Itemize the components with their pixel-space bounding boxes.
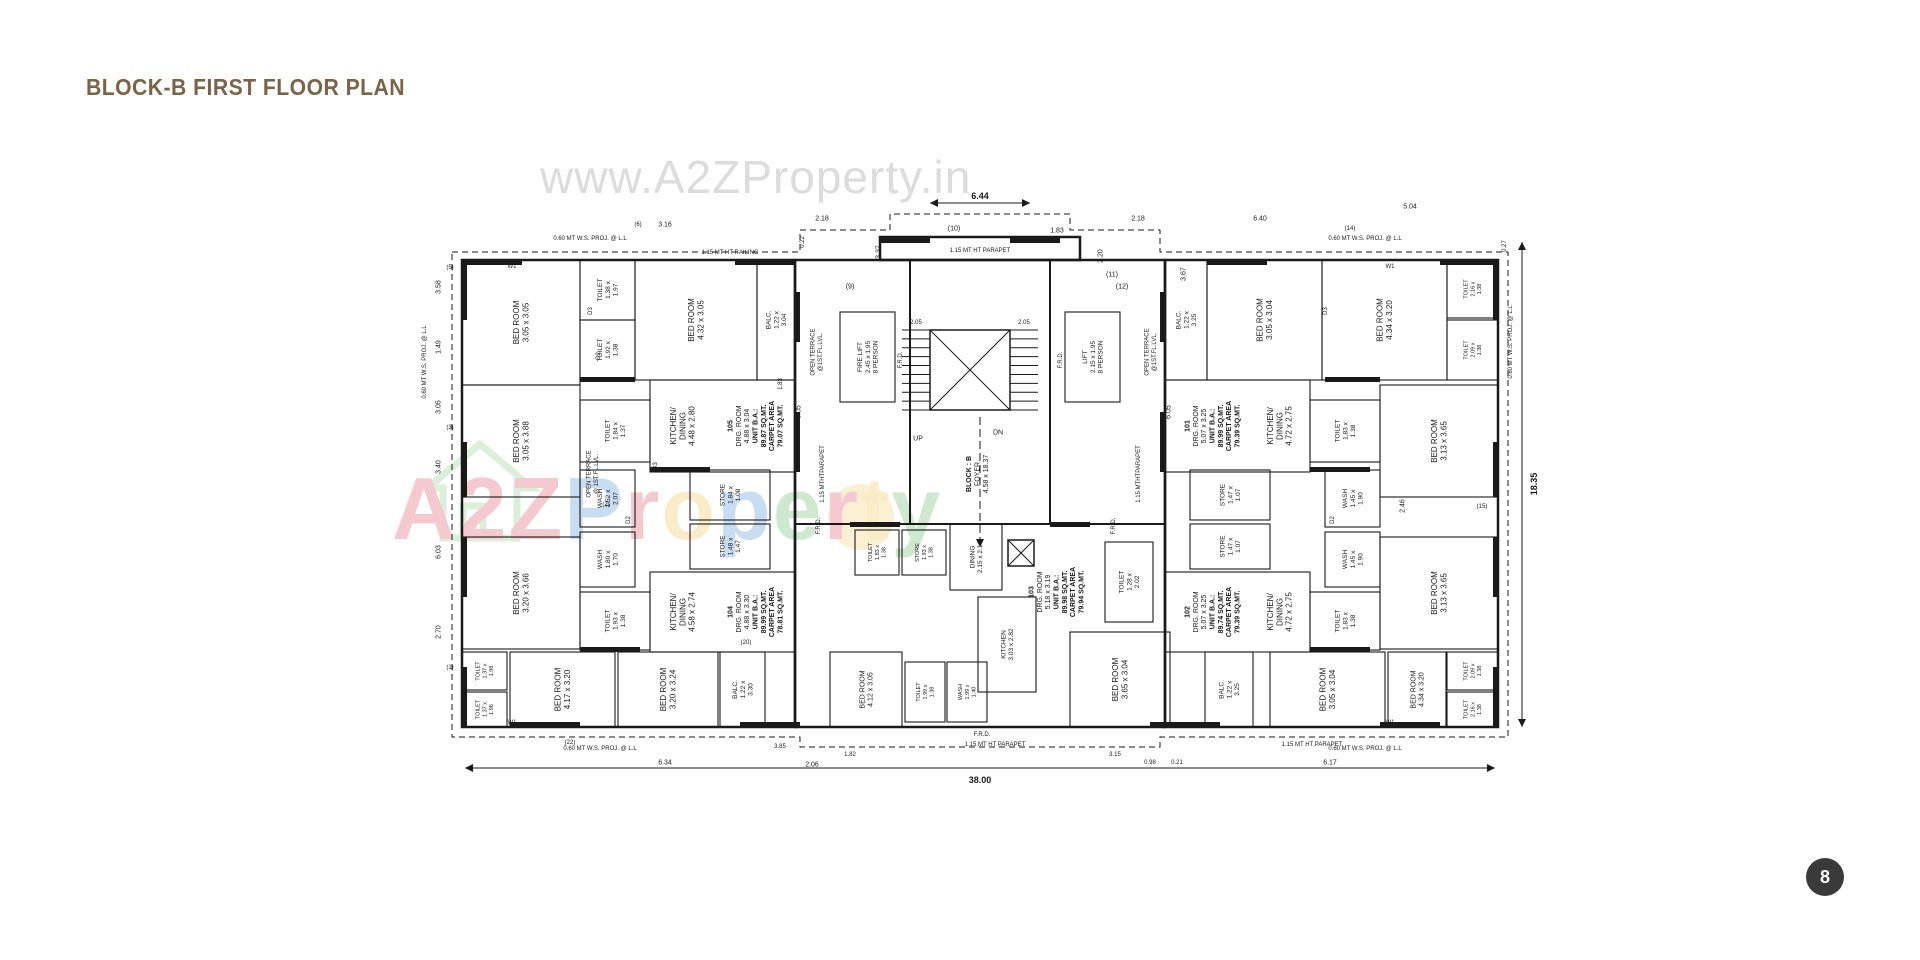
wall-segment <box>795 292 800 342</box>
annotation-label: OPEN TERRACE@ 1ST.FL.LVL. <box>586 450 599 497</box>
annotation-label: 1.15 MT HT PARAPET <box>965 742 1026 748</box>
annotation-label: (14) <box>1345 226 1356 232</box>
dim-arrow <box>1518 242 1526 250</box>
annotation-label: 1.15 MTHTPARAPET <box>820 445 826 503</box>
annotation-label: D2 <box>1330 516 1336 524</box>
annotation-label: 1.83 <box>778 378 784 390</box>
room-label: TOILET1.38 x1.97 <box>597 279 620 302</box>
annotation-label: 2.46 <box>1399 499 1406 513</box>
room-label: LIFT2.15 x 1.958 PERSON <box>1082 340 1105 373</box>
room-label: KITCHEN/DINING4.58 x 2.74 <box>669 592 697 632</box>
annotation-label: 0.27 <box>1502 240 1508 252</box>
unit-info-105: 105DRG. ROOM4.88 x 3.04UNIT B.A.:89.87 S… <box>728 401 785 451</box>
annotation-label: 2.20 <box>1097 249 1104 263</box>
room-label: BED ROOM3.13 x 3.65 <box>1430 419 1448 463</box>
room-label: TOILET1.84 x1.37 <box>604 420 627 443</box>
annotation-label: 0.60 MT W.S. PROJ. @ L.L <box>1508 305 1514 379</box>
room-label: WASH1.45 x1.90 <box>1342 550 1365 570</box>
room-label: BALC.1.22 x3.25 <box>1218 680 1241 699</box>
room-label: TOILET1.28 x2.02 <box>1118 571 1141 594</box>
page-title: BLOCK-B FIRST FLOOR PLAN <box>86 74 405 101</box>
dim-arrow <box>1022 199 1030 207</box>
room-label: FIRE LIFT2.45 x 1.958 PERSON <box>857 340 880 373</box>
room-label: BED ROOM3.05 x 3.05 <box>512 300 530 344</box>
unit-info-104: 104DRG. ROOM4.88 x 3.30UNIT B.A.:89.99 S… <box>728 587 785 637</box>
room-label: BALC.1.22 x3.25 <box>1175 310 1198 329</box>
annotation-label: W1 <box>1386 264 1396 270</box>
annotation-label: OPEN TERRACE@1ST.FL.LVL. <box>810 328 823 375</box>
annotation-label: 5.04 <box>1403 203 1417 210</box>
annotation-label: 1.15 MT HT PARAPET <box>950 248 1011 254</box>
room-label: TOILET1.83 x1.38 <box>1334 420 1357 443</box>
annotation-label: F.R.D. <box>974 732 991 738</box>
wall-segment <box>735 260 795 265</box>
annotation-label: 3.67 <box>1180 267 1187 281</box>
annotation-label: 3.58 <box>435 280 442 294</box>
annotation-label: 0.60 MT W.S. PROJ. @ L.L <box>422 325 428 399</box>
annotation-label: (15) <box>1477 504 1488 510</box>
annotation-label: W1 <box>508 264 518 270</box>
annotation-label: W1 <box>1386 720 1396 726</box>
annotation-label: (20) <box>741 640 752 646</box>
room-label: KITCHEN/DINING4.48 x 2.80 <box>669 406 697 446</box>
unit-info-102: 102DRG. ROOM5.07 x 3.25UNIT B.A.:89.74 S… <box>1185 587 1242 637</box>
wall-segment <box>580 377 635 382</box>
annotation-label: 0.98 <box>1144 760 1156 766</box>
annotation-label: 6.17 <box>1323 759 1337 766</box>
room-label: BED ROOM4.34 x 3.20 <box>1376 298 1394 342</box>
annotation-label: D3 <box>653 462 659 470</box>
annotation-label: DN <box>993 429 1003 436</box>
room-label: BALC.1.22 x3.30 <box>732 680 755 699</box>
annotation-label: 2.18 <box>815 215 829 222</box>
floor-plan: BED ROOM3.05 x 3.05BED ROOM3.05 x 3.88TO… <box>405 180 1545 802</box>
room-label: BED ROOM3.05 x 3.88 <box>512 419 530 463</box>
annotation-label: 2.06 <box>805 761 819 768</box>
wall-segment <box>880 237 930 243</box>
room-label: DINING2.15 x 2.16 <box>969 541 984 574</box>
annotation-label: 0.60 MT W.S. PROJ. @ L.L <box>1328 236 1402 242</box>
wall-segment <box>462 260 467 320</box>
dim-arrow <box>1487 764 1495 772</box>
annotation-label: 6.40 <box>1253 215 1267 222</box>
annotation-label: BLOCK : BFOYER4.58 x 18.37 <box>966 455 990 494</box>
room-label: TOILET2.09 x1.38 <box>1464 661 1484 681</box>
wall-segment <box>1440 260 1498 265</box>
page: BLOCK-B FIRST FLOOR PLAN www.A2ZProperty… <box>0 0 1920 960</box>
room-label: STORE1.93 x1.38 <box>915 543 935 562</box>
floor-plan-container: BED ROOM3.05 x 3.05BED ROOM3.05 x 3.88TO… <box>405 180 1545 807</box>
dim-arrow <box>930 199 938 207</box>
annotation-label: F.R.D. <box>1111 517 1117 534</box>
wall-segment <box>795 412 800 472</box>
room-label: KITCHEN/DINING4.72 x 2.75 <box>1266 592 1294 632</box>
room-label: STORE1.84 x1.08 <box>719 483 742 506</box>
dim-arrow <box>1518 719 1526 727</box>
room-label: BED ROOM4.34 x 3.20 <box>1410 670 1425 708</box>
room-label: KITCHEN3.03 x 2.82 <box>1000 628 1015 661</box>
annotation-label: F.R.D. <box>1058 351 1064 368</box>
annotation-label: (11) <box>1106 271 1118 278</box>
wall-segment <box>1493 260 1498 320</box>
annotation-label: 3.37 <box>875 245 882 259</box>
annotation-label: F.R.D. <box>898 351 904 368</box>
room-label: KITCHEN/DINING4.72 x 2.75 <box>1266 406 1294 446</box>
annotation-label: D2 <box>596 352 602 360</box>
annotation-label: (6) <box>634 222 641 228</box>
wall-segment <box>1493 537 1498 597</box>
annotation-label: 1.15 MTHTPARAPET <box>1136 445 1142 503</box>
wall-segment <box>1010 237 1060 243</box>
room-label: BED ROOM3.05 x 3.04 <box>1319 667 1337 711</box>
wall-segment <box>462 537 467 597</box>
annotation-label: 1.15 MT HT RAILING <box>701 250 758 256</box>
wall-segment <box>850 522 900 527</box>
annotation-label: (10) <box>948 225 960 232</box>
annotation-label: 6.03 <box>435 545 442 559</box>
annotation-label: 3.16 <box>658 221 672 228</box>
room-label: STORE1.47 x1.07 <box>1219 483 1242 506</box>
wall-segment <box>1493 667 1498 727</box>
annotation-label: 2.05 <box>1018 320 1030 326</box>
annotation-label: 3.85 <box>774 744 786 750</box>
wall-segment <box>510 722 580 727</box>
wall-segment <box>1150 722 1220 727</box>
unit-info-103: 103DRG. ROOM5.18 x 3.19UNIT B.A.:89.98 S… <box>1029 567 1086 617</box>
wall-segment <box>580 647 640 652</box>
room-label: WASH1.99 x1.40 <box>958 684 978 700</box>
annotation-label: (12) <box>1116 283 1128 290</box>
annotation-label: 2.18 <box>1131 215 1145 222</box>
room-label: BED ROOM4.12 x 3.05 <box>859 670 874 708</box>
annotation-label: 2.70 <box>435 625 442 639</box>
annotation-label: 3.15 <box>1109 752 1121 758</box>
room-label: TOILET1.37 x1.98 <box>476 661 496 681</box>
annotation-label: (3) <box>446 425 453 431</box>
room-label: STORE1.48 x1.47 <box>719 535 742 558</box>
wall-segment <box>1310 467 1370 472</box>
annotation-label: (5) <box>446 265 453 271</box>
annotation-label: 6.34 <box>658 759 672 766</box>
room-label: TOILET2.16 x1.38 <box>1464 699 1484 719</box>
annotation-label: 0.60 MT W.S. PROJ. @ L.L <box>553 236 627 242</box>
page-number-badge: 8 <box>1806 858 1844 896</box>
wall-segment <box>462 442 467 497</box>
room-label: TOILET1.93 x1.38 <box>604 610 627 633</box>
wall-segment <box>1325 377 1380 382</box>
annotation-label: 6.44 <box>971 191 989 201</box>
wall-segment <box>1160 292 1165 342</box>
wall-segment <box>1207 260 1267 265</box>
annotation-label: UP <box>913 435 923 442</box>
wall-segment <box>1050 522 1090 527</box>
wall-segment <box>1160 412 1165 472</box>
wall-segment <box>1493 442 1498 497</box>
annotation-label: 1.49 <box>435 340 442 354</box>
wall-segment <box>462 667 467 727</box>
room-label: TOILET1.83 x1.38 <box>868 542 888 562</box>
room-label: WASH1.80 x1.70 <box>597 550 620 570</box>
annotation-label: 1.82 <box>844 752 856 758</box>
annotation-label: (1) <box>446 665 453 671</box>
wall-segment <box>740 722 800 727</box>
annotation-label: (2) <box>602 502 609 508</box>
room-label: TOILET2.09 x1.38 <box>1464 340 1484 360</box>
room-label: TOILET1.83 x1.38 <box>1334 610 1357 633</box>
annotation-label: F.R.D. <box>816 517 822 534</box>
annotation-label: OPEN TERRACE@1ST.FL.LVL. <box>1144 328 1157 375</box>
annotation-label: D3 <box>588 307 594 315</box>
room-label: BALC.1.22 x3.04 <box>765 310 788 329</box>
annotation-label: W1 <box>508 720 518 726</box>
room-label: BED ROOM3.65 x 3.04 <box>1111 657 1129 701</box>
unit-info-101: 101DRG. ROOM5.07 x 3.25UNIT B.A.:89.99 S… <box>1185 401 1242 451</box>
room-label: STORE1.47 x1.07 <box>1219 535 1242 558</box>
annotation-label: 38.00 <box>969 775 992 785</box>
room-label: BED ROOM3.05 x 3.04 <box>1256 298 1274 342</box>
dim-arrow <box>465 764 473 772</box>
annotation-label: D3 <box>1323 307 1329 315</box>
annotation-label: 6.05 <box>1165 405 1172 419</box>
room-label: BED ROOM3.20 x 3.24 <box>659 667 677 711</box>
annotation-label: 0.60 MT W.S. PROJ. @ L.L <box>1328 746 1402 752</box>
room-label: BED ROOM3.20 x 3.66 <box>512 571 530 615</box>
annotation-label: 0.22 <box>800 236 806 248</box>
room-label: WASH1.45 x1.90 <box>1342 489 1365 509</box>
outer-wall <box>1165 260 1498 727</box>
annotation-label: 3.05 <box>435 400 442 414</box>
annotation-label: 0.60 MT W.S. PROJ. @ L.L <box>563 746 637 752</box>
annotation-label: 3.40 <box>435 460 442 474</box>
room-label: TOILET1.99 x1.38 <box>916 682 936 702</box>
room-label: TOILET1.37 x1.96 <box>476 699 496 719</box>
wall-segment <box>1310 647 1370 652</box>
room-label: BED ROOM4.32 x 3.05 <box>687 298 705 342</box>
annotation-label: 0.21 <box>1171 760 1183 766</box>
annotation-label: 2.05 <box>910 320 922 326</box>
annotation-label: (9) <box>846 283 855 290</box>
annotation-label: 6.05 <box>795 405 802 419</box>
room-label: BED ROOM4.17 x 3.20 <box>554 667 572 711</box>
annotation-label: 1.83 <box>1050 227 1064 234</box>
room-label: BED ROOM3.13 x 3.65 <box>1430 571 1448 615</box>
annotation-label: D2 <box>626 516 632 524</box>
room-label: TOILET2.16 x1.38 <box>1464 279 1484 299</box>
annotation-label: 18.35 <box>1529 473 1539 496</box>
